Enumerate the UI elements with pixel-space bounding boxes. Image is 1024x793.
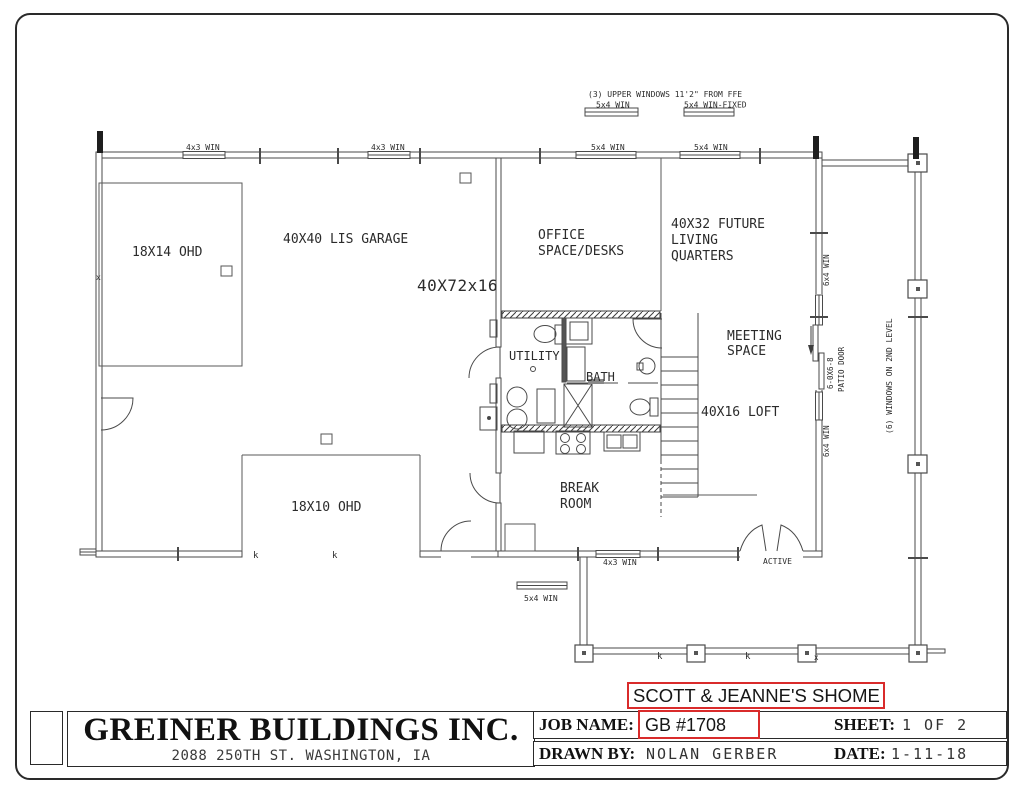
label-utility: UTILITY — [509, 349, 560, 363]
post-mark: k — [253, 551, 259, 561]
label-flq-2: LIVING — [671, 233, 718, 248]
label-patio-size: 6-0X6-8 — [826, 357, 835, 389]
label-ohd-18x10: 18X10 OHD — [291, 500, 362, 515]
label-meeting-2: SPACE — [727, 344, 766, 359]
washer-icon — [507, 387, 527, 407]
wall-garage-office-3 — [496, 503, 501, 551]
window-6x4-right-upper — [816, 295, 823, 325]
label-right-win-lower: 6x4 WIN — [822, 425, 831, 457]
door-bath — [633, 319, 662, 348]
electrical-panel — [480, 407, 497, 430]
door-left-wall — [101, 398, 133, 430]
structure-markers — [97, 131, 928, 662]
note-upper-win-right: 5x4 WIN-FIXED — [684, 101, 747, 110]
bath-cabinet — [567, 347, 585, 381]
walls — [96, 152, 921, 659]
door-garage-utility — [469, 347, 500, 378]
label-window-top-3: 5x4 WIN — [591, 143, 625, 152]
bath-divider-wall — [562, 318, 566, 382]
company-name: GREINER BUILDINGS INC. — [68, 713, 534, 748]
post-mark: k — [332, 551, 338, 561]
label-office-2: SPACE/DESKS — [538, 244, 624, 259]
x-mark: x — [96, 273, 101, 282]
label-ohd-18x14: 18X14 OHD — [132, 245, 203, 260]
bath-toilet-icon — [630, 398, 658, 416]
water-heater-icon — [564, 384, 592, 427]
door-entry-bottom — [441, 521, 471, 551]
post-mark: k — [657, 652, 663, 662]
drawn-by-row: DRAWN BY: NOLAN GERBER DATE: 1-11-18 — [533, 741, 1007, 766]
job-name-row: JOB NAME: GB #1708 SHEET: 1 OF 2 — [533, 711, 1007, 739]
label-second-level-windows: (6) WINDOWS ON 2ND LEVEL — [885, 318, 894, 434]
bath-sink-icon — [637, 358, 655, 374]
label-break-2: ROOM — [560, 497, 591, 512]
drawn-by-value: NOLAN GERBER — [646, 745, 778, 763]
fixtures — [480, 318, 658, 454]
kitchen-fridge — [514, 431, 544, 453]
label-window-top-4: 5x4 WIN — [694, 143, 728, 152]
drawing-sheet: (3) UPPER WINDOWS 11'2" FROM FFE 5x4 WIN… — [0, 0, 1024, 793]
shower-icon — [566, 318, 592, 344]
wall-left-porch — [580, 557, 587, 648]
label-right-win-upper: 6x4 WIN — [822, 254, 831, 286]
floorplan-svg: (3) UPPER WINDOWS 11'2" FROM FFE 5x4 WIN… — [0, 0, 1024, 793]
project-name-annotation: SCOTT & JEANNE'S SHOME — [627, 682, 885, 709]
job-number-annotation: GB #1708 — [638, 710, 760, 739]
post-mark: k — [745, 652, 751, 662]
window-4x3-bottom — [596, 551, 640, 558]
window-stub-right — [927, 649, 945, 653]
stair-treads — [661, 357, 698, 497]
label-window-porch: 5x4 WIN — [524, 594, 558, 603]
door-active-right-leaf — [777, 525, 803, 551]
date-label: DATE: — [834, 744, 886, 764]
breakroom-step — [505, 524, 535, 551]
utility-toilet-icon — [534, 325, 564, 344]
label-loft: 40X16 LOFT — [701, 405, 779, 420]
label-bath: BATH — [586, 370, 615, 384]
window-4x3-top-2 — [368, 152, 410, 159]
window-5x4-top-1 — [576, 152, 636, 159]
x-mark: x — [814, 653, 819, 662]
plan-labels: (3) UPPER WINDOWS 11'2" FROM FFE 5x4 WIN… — [96, 90, 894, 662]
label-active-door: ACTIVE — [763, 557, 792, 566]
door-active-left-leaf — [740, 525, 766, 551]
label-patio-door: PATIO DOOR — [837, 346, 846, 392]
interior-lines — [99, 158, 757, 551]
company-address: 2088 250TH ST. WASHINGTON, IA — [68, 748, 534, 764]
window-5x4-top-2 — [680, 152, 740, 159]
sheet-label: SHEET: — [834, 715, 895, 735]
wall-bottom-garage — [96, 551, 242, 557]
utility-appliance — [537, 389, 555, 423]
drawn-by-label: DRAWN BY: — [539, 744, 635, 764]
label-office-1: OFFICE — [538, 228, 585, 243]
window-6x4-right-lower — [816, 392, 823, 420]
label-building-dims: 40X72x16 — [417, 276, 498, 295]
label-garage: 40X40 LIS GARAGE — [283, 232, 408, 247]
label-window-top-2: 4x3 WIN — [371, 143, 405, 152]
staircase — [661, 313, 698, 517]
label-break-1: BREAK — [560, 481, 599, 496]
window-stub-left — [80, 549, 96, 555]
floor-markers — [221, 173, 471, 444]
sheet-value: 1 OF 2 — [902, 716, 968, 734]
stove-icon — [556, 431, 590, 454]
door-garage-break — [470, 473, 500, 503]
wall-right-porch — [915, 160, 921, 659]
window-5x4-porch — [517, 582, 567, 589]
label-window-top-1: 4x3 WIN — [186, 143, 220, 152]
label-meeting-1: MEETING — [727, 329, 782, 344]
wall-garage-office-1 — [496, 158, 501, 347]
floor-drain-icon — [531, 367, 536, 372]
company-box: GREINER BUILDINGS INC. 2088 250TH ST. WA… — [67, 711, 535, 767]
job-name-label: JOB NAME: — [539, 715, 634, 735]
note-upper-windows: (3) UPPER WINDOWS 11'2" FROM FFE — [588, 90, 742, 99]
date-value: 1-11-18 — [891, 745, 968, 763]
note-upper-win-left: 5x4 WIN — [596, 101, 630, 110]
label-window-bottom: 4x3 WIN — [603, 558, 637, 567]
window-4x3-top-1 — [183, 152, 225, 159]
label-flq-1: 40X32 FUTURE — [671, 217, 765, 232]
sheet-border — [16, 14, 1008, 779]
kitchen-sink-icon — [604, 432, 640, 451]
title-block-spacer-cell — [30, 711, 63, 765]
label-flq-3: QUARTERS — [671, 249, 734, 264]
wall-top-porch — [822, 160, 921, 166]
